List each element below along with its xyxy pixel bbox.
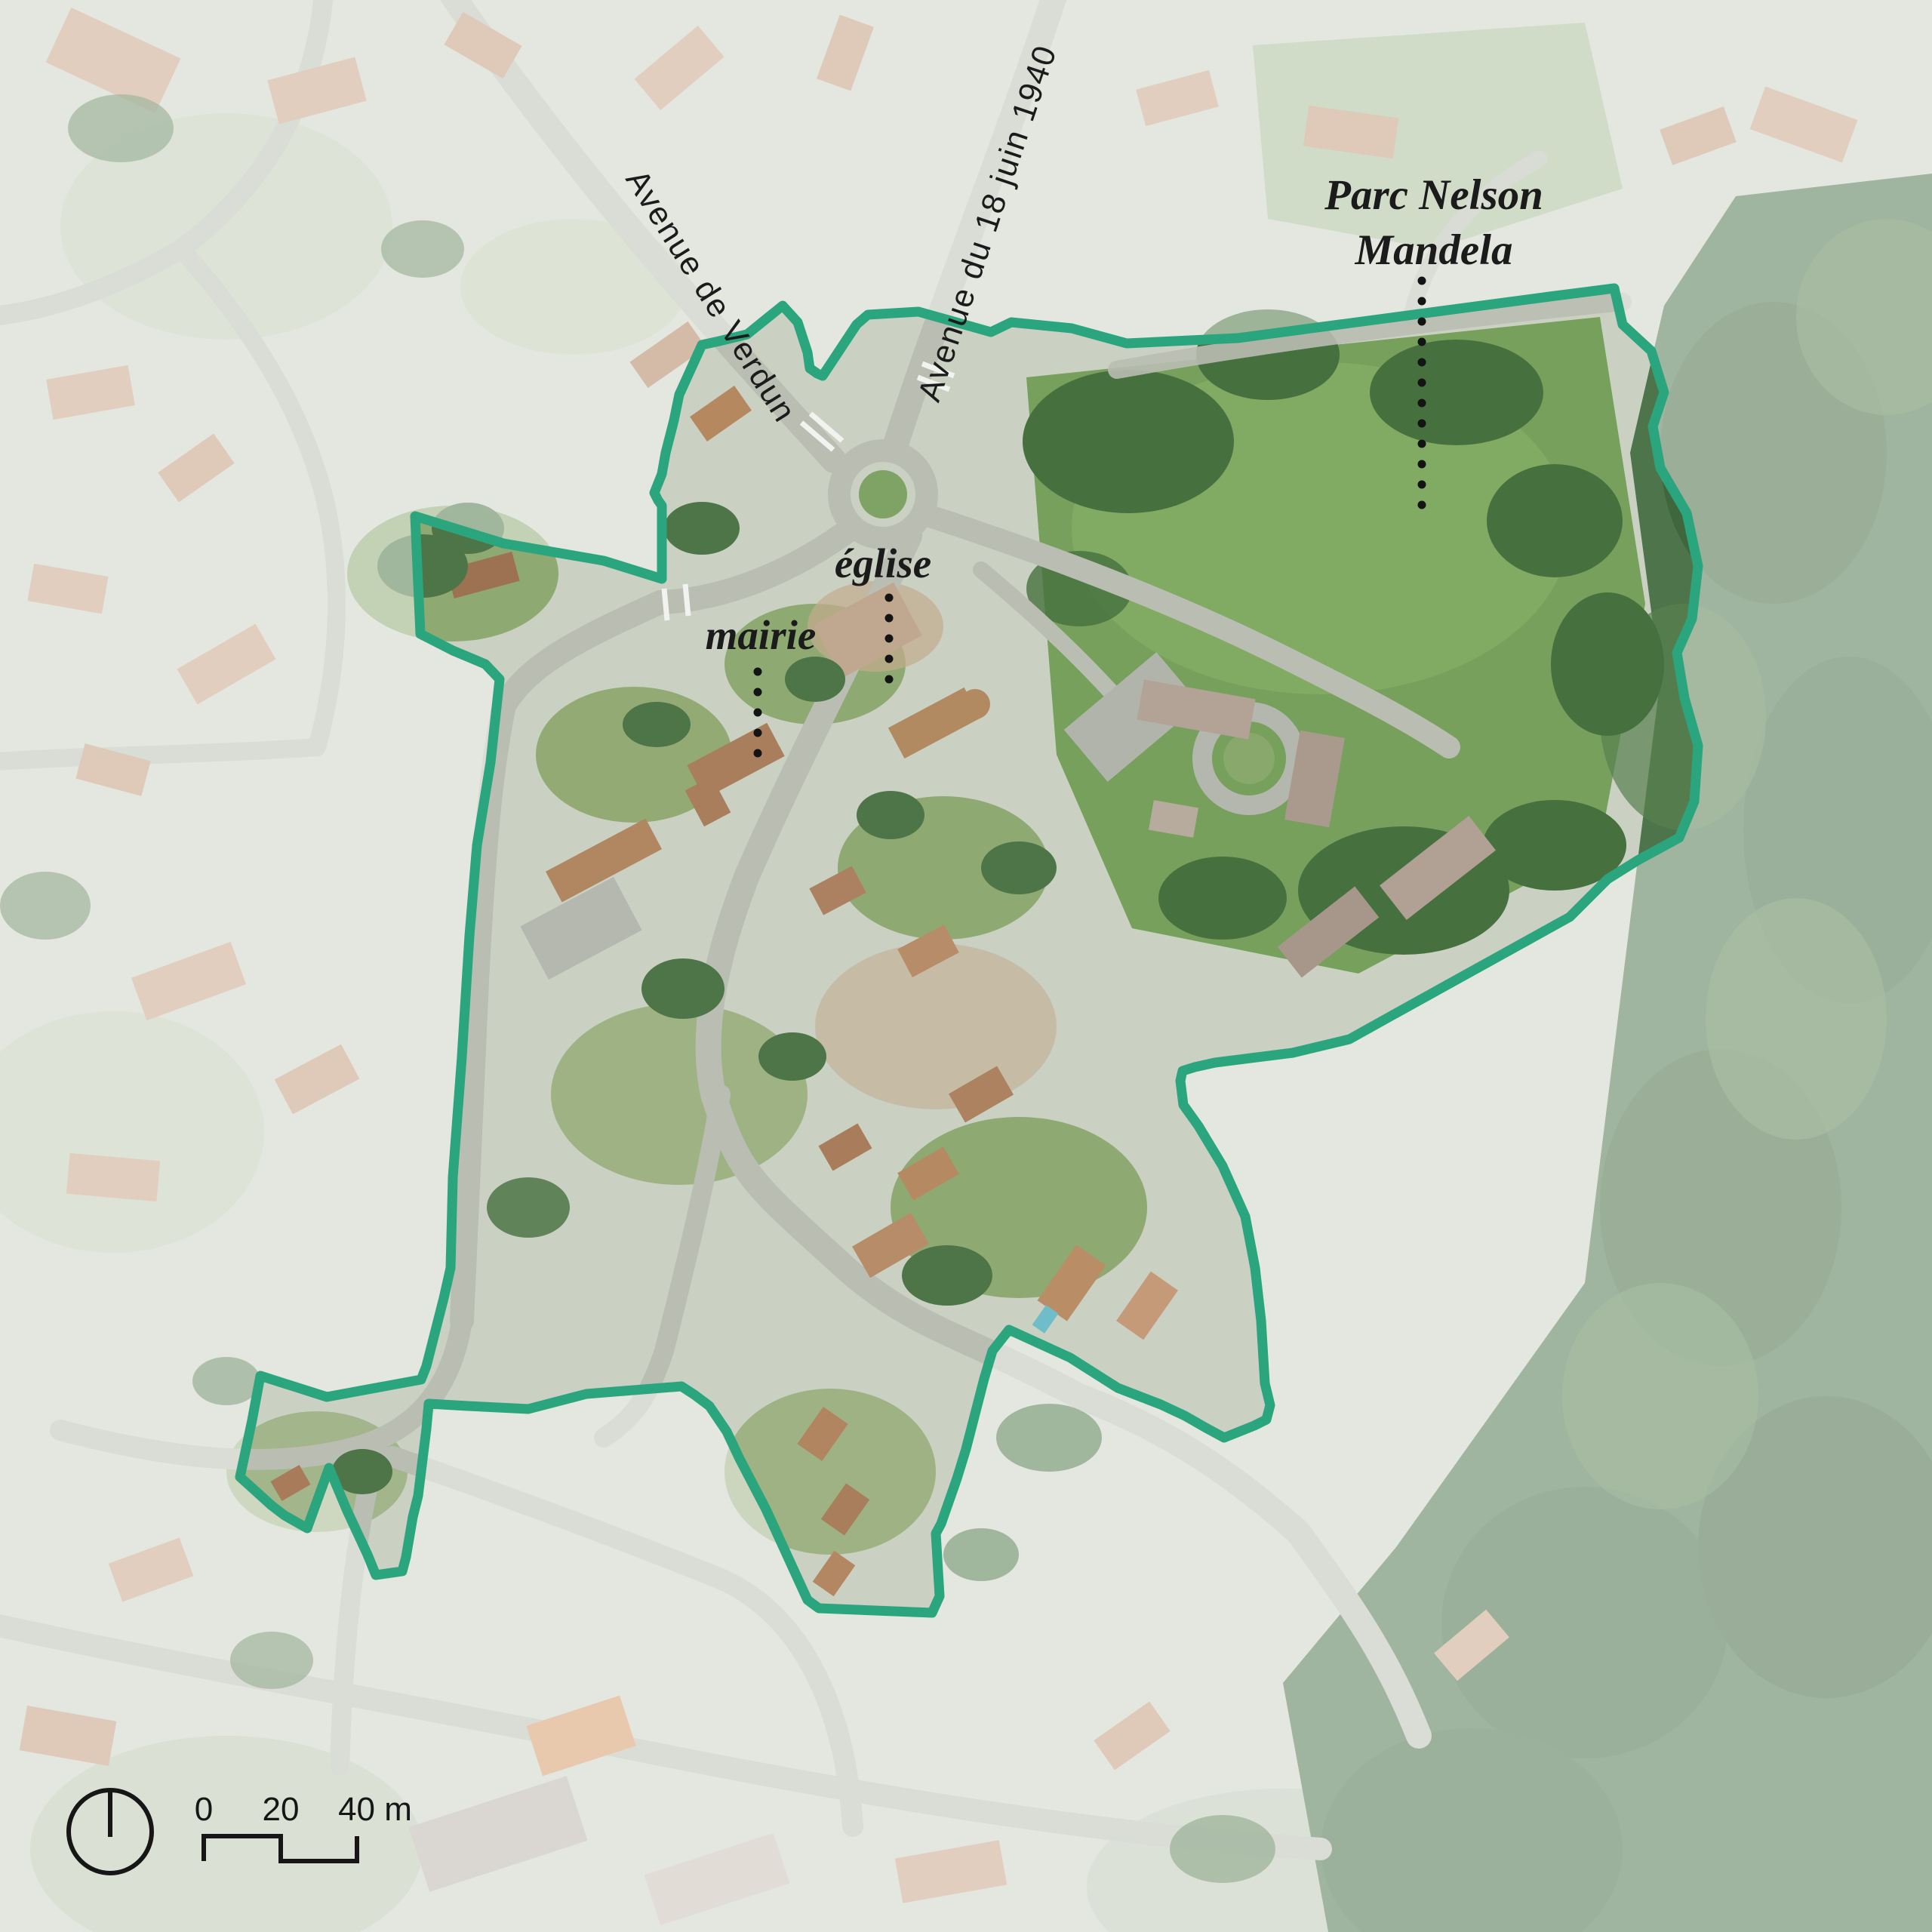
scale-bar-label-20: 20 bbox=[263, 1791, 300, 1828]
park-label-line1: Parc Nelson bbox=[1324, 171, 1543, 219]
aerial-map: Avenue de Verdun Avenue du 18 juin 1940 … bbox=[0, 0, 1932, 1932]
scale-bar-label-0: 0 bbox=[195, 1791, 213, 1828]
scale-bar-label-40m: 40 m bbox=[338, 1791, 412, 1828]
aerial-map-figure: Avenue de Verdun Avenue du 18 juin 1940 … bbox=[0, 0, 1932, 1932]
town-hall-label: mairie bbox=[706, 612, 817, 658]
church-label: église bbox=[835, 540, 931, 586]
park-label-line2: Mandela bbox=[1354, 226, 1512, 274]
